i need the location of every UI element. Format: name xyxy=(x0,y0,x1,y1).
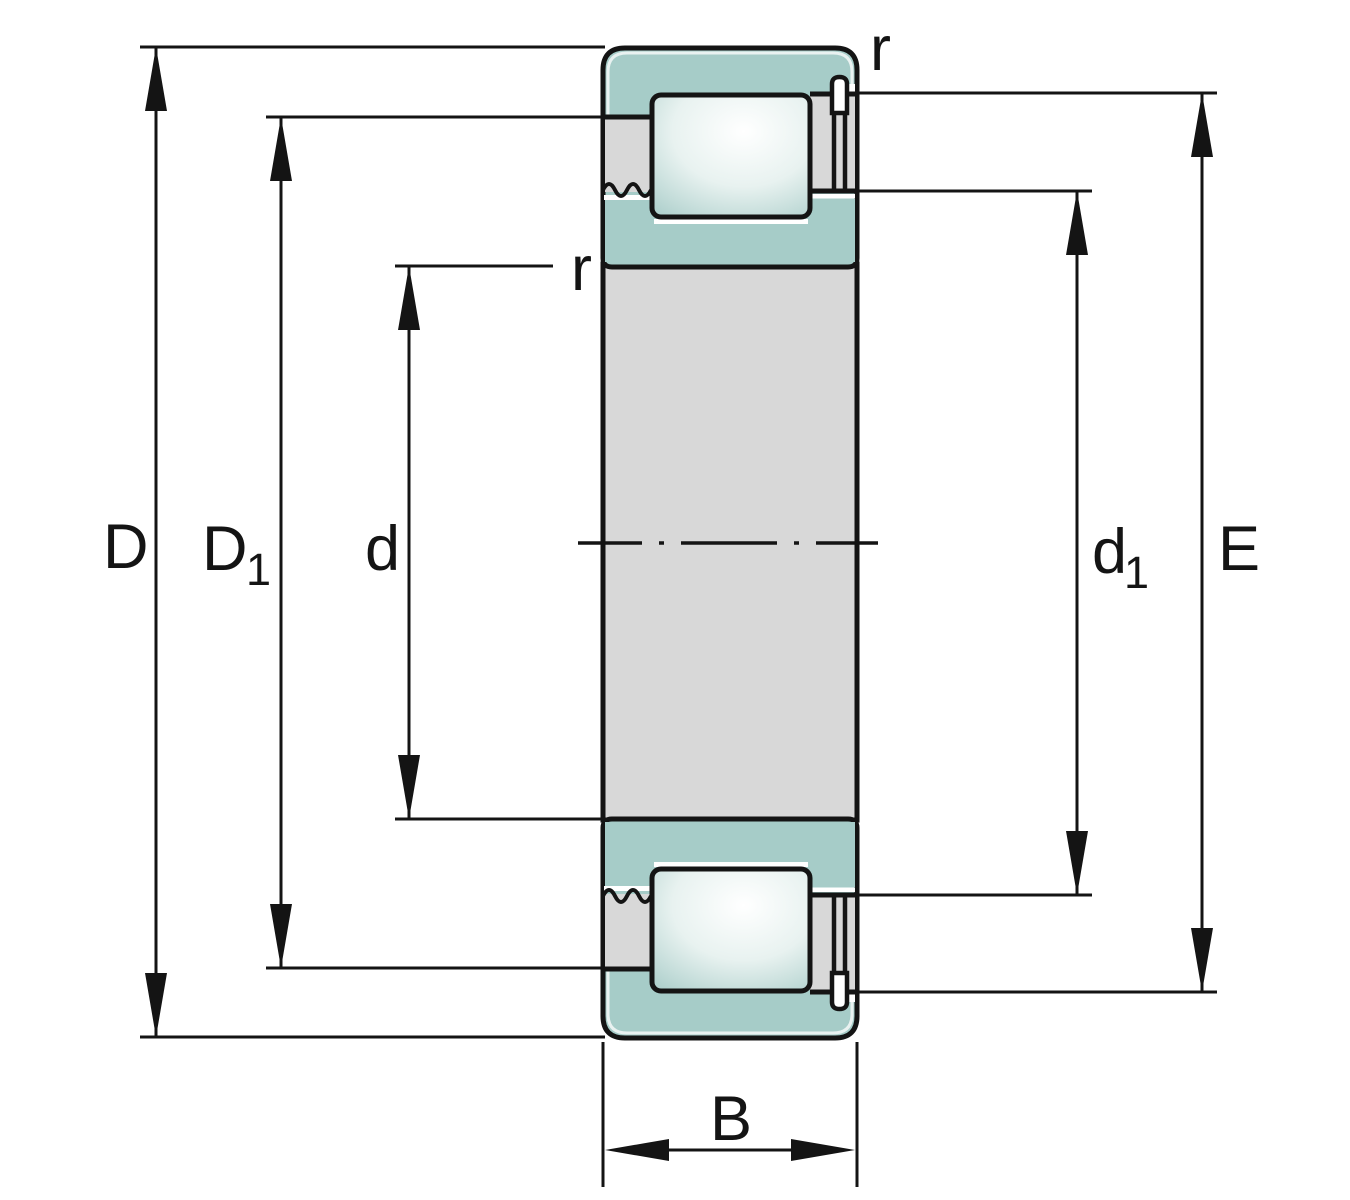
dimension-D: D xyxy=(103,47,605,1037)
loose-rib-cap-bottom xyxy=(832,973,847,1009)
roller-top xyxy=(652,95,810,217)
dimension-d-arrow-down xyxy=(398,755,420,819)
dimension-D-label: D xyxy=(103,512,149,582)
dimension-d1-arrow-down xyxy=(1066,831,1088,895)
dimension-D1-arrow-down xyxy=(270,904,292,968)
drawing-canvas: D D 1 d d 1 xyxy=(0,0,1350,1200)
dimension-d: d xyxy=(365,266,604,819)
chamfer-r-label-outer: r xyxy=(870,14,891,84)
dimension-D1-subscript: 1 xyxy=(246,544,271,595)
flange-gap-right-bottom xyxy=(810,888,855,893)
dimension-d-leaders xyxy=(395,266,604,819)
dimension-E-label: E xyxy=(1218,514,1260,584)
roller-under-highlight-top xyxy=(654,219,808,224)
dimension-E-arrow-down xyxy=(1191,928,1213,992)
flange-gap-right-top xyxy=(810,194,855,199)
dimension-D-arrow-up xyxy=(145,47,167,111)
dimension-B-arrow-left xyxy=(605,1139,669,1161)
dimension-D1-label: D xyxy=(202,514,248,584)
bearing-half-top xyxy=(603,48,857,267)
dimension-D-arrow-down xyxy=(145,973,167,1037)
dimension-d1-arrow-up xyxy=(1066,191,1088,255)
dimension-d-arrow-up xyxy=(398,266,420,330)
chamfer-r-label-inner: r xyxy=(571,234,592,304)
cage-section-left-top xyxy=(605,117,651,192)
bearing-cross-section xyxy=(578,48,881,1038)
dimension-D1: D 1 xyxy=(202,117,603,968)
dimension-B-label: B xyxy=(710,1084,752,1154)
loose-rib-cap-top xyxy=(832,77,847,113)
dimension-E-arrow-up xyxy=(1191,93,1213,157)
dimension-d1-leaders xyxy=(857,191,1092,895)
dimension-D1-leaders xyxy=(266,117,603,968)
dimension-E: E xyxy=(857,93,1260,992)
bearing-dimension-drawing: D D 1 d d 1 xyxy=(0,0,1350,1200)
dimension-d-label: d xyxy=(365,514,400,584)
bearing-half-bottom xyxy=(603,819,857,1038)
roller-over-highlight-bottom xyxy=(654,862,808,867)
dimension-d1-subscript: 1 xyxy=(1124,547,1149,598)
dimension-D1-arrow-up xyxy=(270,117,292,181)
dimension-B: B xyxy=(603,1042,857,1187)
dimension-B-arrow-right xyxy=(791,1139,855,1161)
dimension-E-leaders xyxy=(857,93,1217,992)
dimension-d1: d 1 xyxy=(857,191,1149,895)
roller-bottom xyxy=(652,869,810,991)
cage-section-left-bottom xyxy=(605,894,651,969)
dimension-d1-label: d xyxy=(1092,517,1127,587)
